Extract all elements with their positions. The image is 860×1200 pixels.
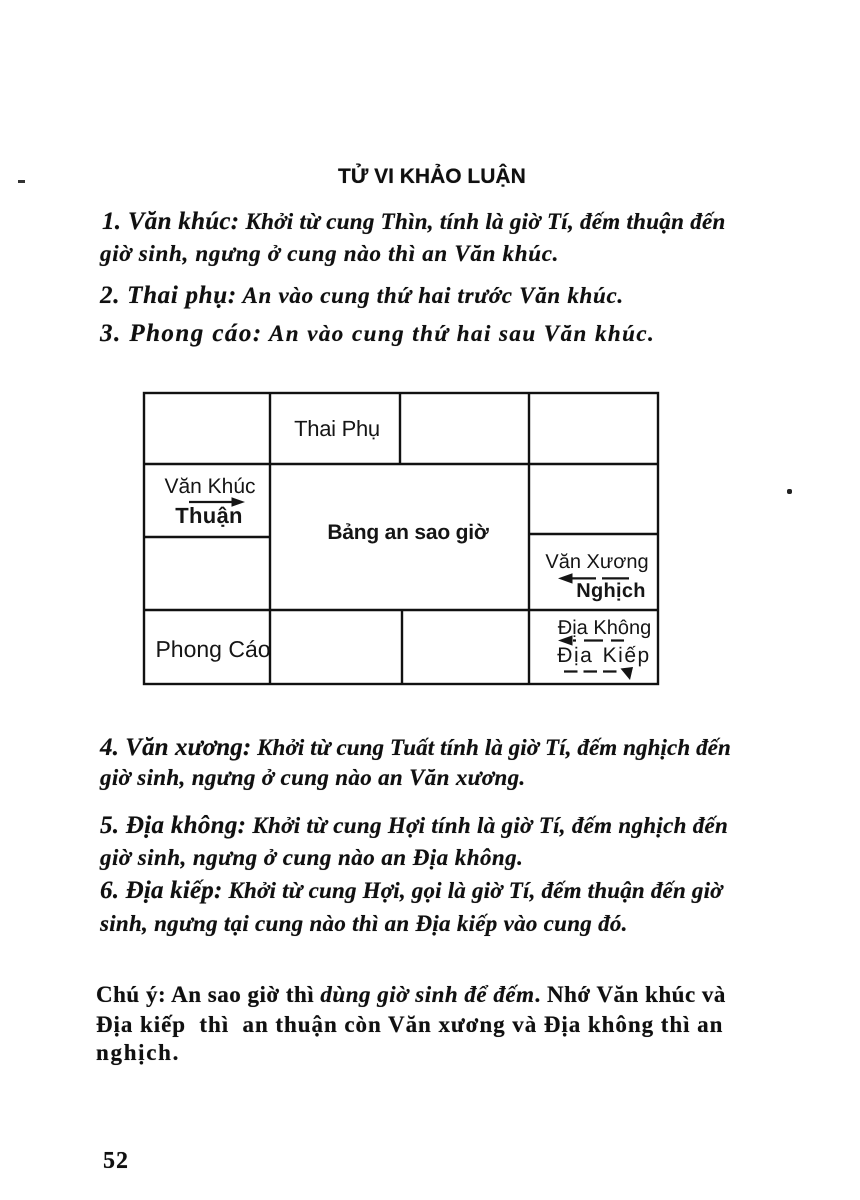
svg-text:Văn Xương: Văn Xương: [545, 551, 648, 573]
svg-text:Phong Cáo: Phong Cáo: [155, 636, 270, 662]
svg-text:Địa Kiếp: Địa Kiếp: [557, 644, 650, 667]
svg-text:Nghịch: Nghịch: [576, 580, 646, 602]
svg-text:Thai Phụ: Thai Phụ: [294, 416, 380, 441]
svg-text:Bảng an sao giờ: Bảng an sao giờ: [327, 521, 489, 544]
svg-text:Thuận: Thuận: [175, 503, 243, 528]
svg-text:Văn Khúc: Văn Khúc: [164, 475, 255, 498]
